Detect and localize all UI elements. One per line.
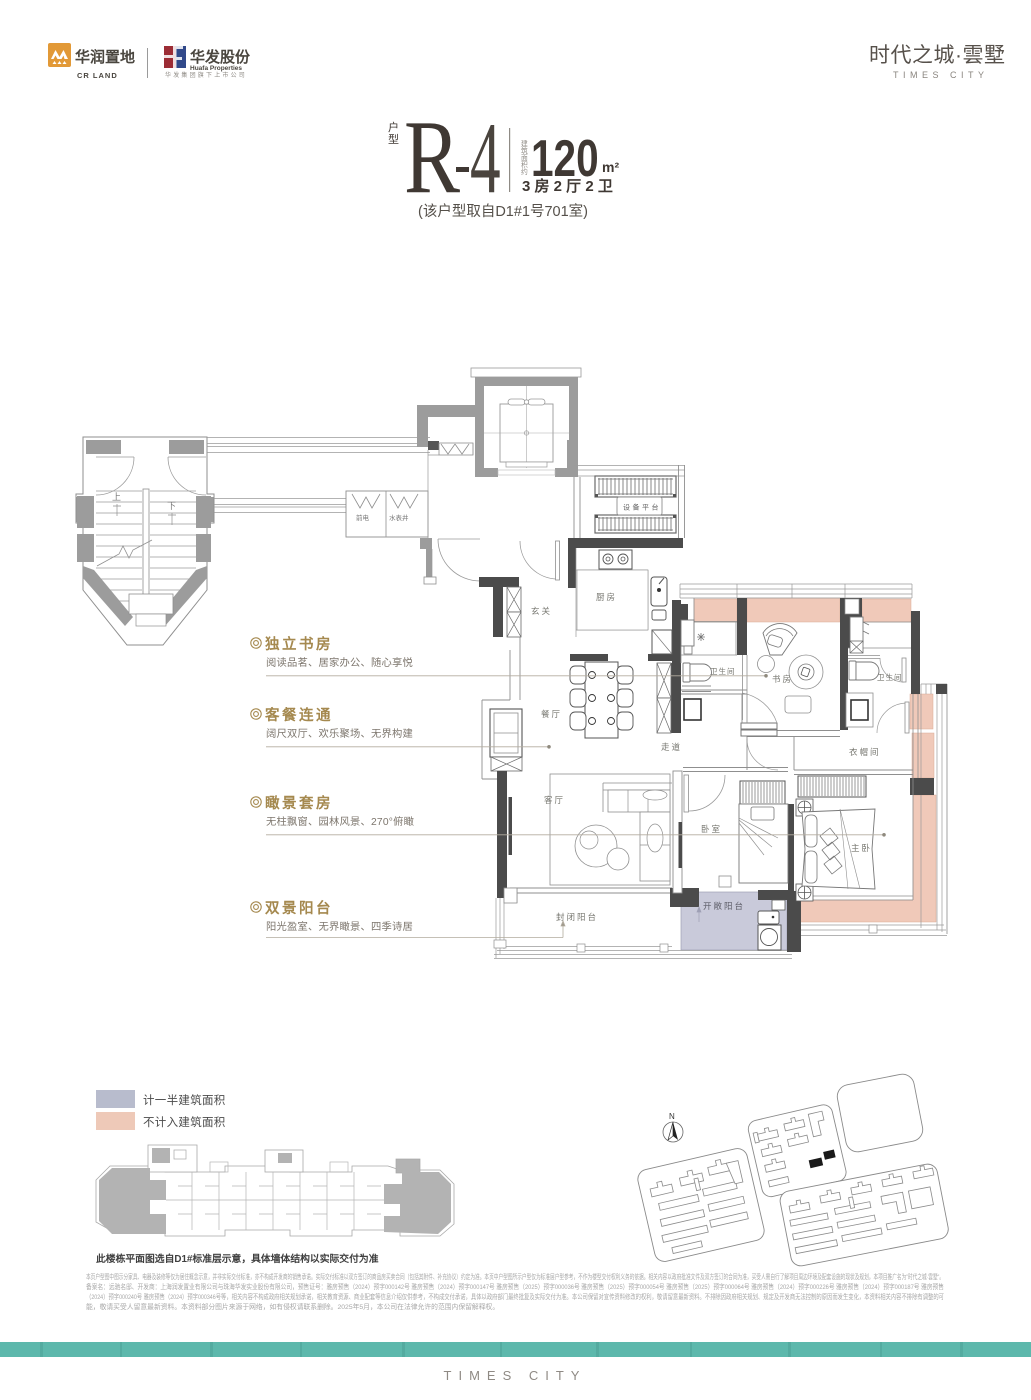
svg-text:此楼栋平面图选自D1#标准层示意，具体墙体结构以实际交付为准: 此楼栋平面图选自D1#标准层示意，具体墙体结构以实际交付为准 xyxy=(96,1252,379,1265)
svg-text:华润置地: 华润置地 xyxy=(75,48,135,66)
svg-text:约: 约 xyxy=(521,167,528,176)
svg-text:计一半建筑面积: 计一半建筑面积 xyxy=(143,1093,226,1107)
svg-text:（2024）预字000240号 雅房预售（2024）预字00: （2024）预字000240号 雅房预售（2024）预字000346号等，相关内… xyxy=(86,1292,944,1301)
svg-text:m²: m² xyxy=(602,159,619,175)
svg-text:设备平台: 设备平台 xyxy=(623,503,661,512)
svg-text:餐厅: 餐厅 xyxy=(541,709,562,719)
svg-text:封闭阳台: 封闭阳台 xyxy=(556,912,598,922)
svg-text:时代之城·雲墅: 时代之城·雲墅 xyxy=(869,44,1006,67)
svg-text:Huafa Properties: Huafa Properties xyxy=(190,65,242,72)
svg-text:建: 建 xyxy=(521,139,528,148)
svg-text:华发集团旗下上市公司: 华发集团旗下上市公司 xyxy=(165,71,247,79)
svg-text:4: 4 xyxy=(470,102,501,215)
svg-text:TIMES CITY: TIMES CITY xyxy=(893,70,989,80)
svg-text:客餐连通: 客餐连通 xyxy=(264,706,333,724)
svg-text:备案名：远驰名邸、开发商：上海润发置业有限公司与珠海华发实业: 备案名：远驰名邸、开发商：上海润发置业有限公司与珠海华发实业股份有限公司，预售证… xyxy=(86,1282,944,1291)
svg-text:N: N xyxy=(669,1112,675,1121)
svg-text:衣帽间: 衣帽间 xyxy=(849,747,881,757)
svg-text:卫生间: 卫生间 xyxy=(710,666,736,676)
svg-text:瞰景套房: 瞰景套房 xyxy=(265,794,333,812)
svg-text:客厅: 客厅 xyxy=(544,795,565,805)
svg-text:开敞阳台: 开敞阳台 xyxy=(703,901,745,911)
svg-text:TIMES CITY: TIMES CITY xyxy=(444,1368,587,1383)
svg-text:卫生间: 卫生间 xyxy=(877,672,903,682)
svg-text:阳光盈室、无界瞰景、四季诗居: 阳光盈室、无界瞰景、四季诗居 xyxy=(266,920,413,933)
svg-text:R: R xyxy=(404,98,461,215)
svg-text:厨房: 厨房 xyxy=(596,592,617,602)
svg-text:面: 面 xyxy=(521,154,528,162)
svg-text:玄关: 玄关 xyxy=(531,606,552,616)
svg-text:能，敬请买受人留意最新资料。本资料部分图片来源于网络，如有侵: 能，敬请买受人留意最新资料。本资料部分图片来源于网络，如有侵权请联系删除。202… xyxy=(86,1302,499,1311)
svg-text:卧室: 卧室 xyxy=(701,824,722,834)
svg-text:主卧: 主卧 xyxy=(851,843,872,853)
svg-text:走道: 走道 xyxy=(661,742,682,752)
svg-text:双景阳台: 双景阳台 xyxy=(265,899,333,917)
svg-text:阔尺双厅、欢乐聚场、无界构建: 阔尺双厅、欢乐聚场、无界构建 xyxy=(266,727,413,740)
svg-text:前电: 前电 xyxy=(356,513,370,522)
svg-text:型: 型 xyxy=(388,132,399,146)
svg-text:户: 户 xyxy=(388,120,399,134)
svg-text:水表井: 水表井 xyxy=(389,513,409,522)
svg-text:本页户型图中图示分家具、电器及装修等仅为居住概念示意，并非实: 本页户型图中图示分家具、电器及装修等仅为居住概念示意，并非实际交付标准，亦不构成… xyxy=(86,1272,944,1281)
svg-text:不计入建筑面积: 不计入建筑面积 xyxy=(143,1115,226,1129)
svg-text:阅读品茗、居家办公、随心享悦: 阅读品茗、居家办公、随心享悦 xyxy=(266,656,413,669)
svg-text:下: 下 xyxy=(167,501,176,511)
svg-text:上: 上 xyxy=(112,492,121,502)
svg-text:3 房 2 厅 2 卫: 3 房 2 厅 2 卫 xyxy=(522,177,613,195)
svg-text:筑: 筑 xyxy=(521,146,528,155)
svg-text:书房: 书房 xyxy=(772,674,793,684)
svg-text:(该户型取自D1#1号701室): (该户型取自D1#1号701室) xyxy=(418,203,588,220)
svg-text:独立书房: 独立书房 xyxy=(265,635,333,653)
svg-text:华发股份: 华发股份 xyxy=(190,48,251,66)
svg-text:无柱飘窗、园林风景、270°俯瞰: 无柱飘窗、园林风景、270°俯瞰 xyxy=(266,815,414,828)
svg-text:CR LAND: CR LAND xyxy=(77,71,118,80)
svg-text:积: 积 xyxy=(521,160,528,169)
